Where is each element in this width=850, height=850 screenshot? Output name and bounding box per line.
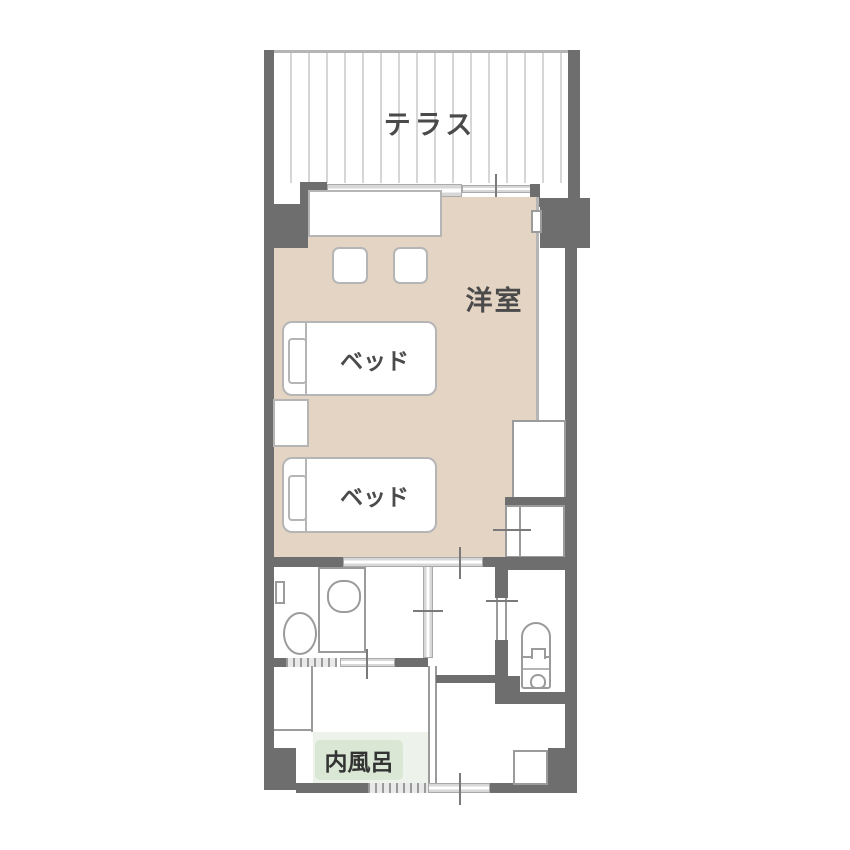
washroom-south-wall-right (395, 658, 428, 667)
chair-2 (393, 247, 428, 284)
bottom-left-corner-block (264, 748, 296, 790)
top-left-wall-block (274, 204, 308, 248)
washroom-south-wall (274, 658, 286, 667)
genkan-corner-block (548, 748, 577, 790)
indoor-bath-label: 内風呂 (325, 743, 394, 777)
closet-tick-mark (493, 529, 531, 531)
bath-window-hatch (368, 783, 428, 793)
bed-1-label: ベッド (314, 323, 435, 394)
western-room-label: 洋室 (452, 282, 537, 314)
bedroom-sliding-door (343, 557, 483, 567)
washroom-hall-door (423, 566, 433, 658)
bedroom-door-tick (459, 547, 461, 579)
closet-divider-wall (505, 497, 566, 505)
toilet-west-wall-upper (495, 570, 508, 598)
toilet-fixture (521, 622, 551, 689)
toilet-tank-line (523, 668, 549, 670)
chair-1 (332, 247, 368, 284)
toilet-north-wall (495, 557, 565, 570)
entrance-door-tick (459, 773, 461, 805)
washroom-sink (327, 580, 361, 613)
toilet-base (530, 674, 546, 689)
changing-room-line (274, 729, 312, 731)
right-corner-block (540, 198, 590, 248)
bed-1-pillow (288, 338, 307, 384)
bottom-wall-left (296, 783, 368, 793)
washroom-door-tick (366, 649, 368, 679)
changing-room-divider (311, 666, 313, 732)
washroom-wall-niche (275, 581, 285, 604)
toilet-door-tick (486, 600, 518, 602)
closet-lower (505, 505, 565, 558)
bed-2-label: ベッド (314, 459, 435, 531)
window-side-sofa (308, 190, 442, 237)
terrace-top-edge (264, 50, 580, 53)
toilet-flush-handle (531, 648, 546, 659)
closet-upper (512, 420, 566, 499)
nightstand (273, 399, 309, 447)
indoor-bath-label-box: 内風呂 (315, 740, 403, 780)
floor-plan: テラス 洋室 ベッド ベッド (0, 0, 850, 850)
closet-lower-door-line (519, 507, 521, 556)
bed-2-pillow (288, 475, 307, 521)
pipe-space-notch (531, 210, 542, 233)
washroom-hall-door-tick (413, 610, 443, 612)
toilet-south-wall (508, 692, 565, 704)
hall-genkan-wall (436, 675, 497, 683)
terrace-window-2 (462, 185, 532, 193)
bed-1: ベッド (282, 321, 437, 396)
bath-partition-wall (428, 666, 437, 785)
terrace-label: テラス (350, 104, 510, 140)
bed-2: ベッド (282, 457, 437, 533)
shoe-cabinet (513, 750, 548, 785)
washroom-basin (283, 612, 317, 655)
right-outer-wall (565, 248, 577, 793)
toilet-door (496, 598, 507, 640)
terrace-right-pillar (568, 50, 580, 198)
bedroom-south-wall-left (264, 557, 343, 567)
